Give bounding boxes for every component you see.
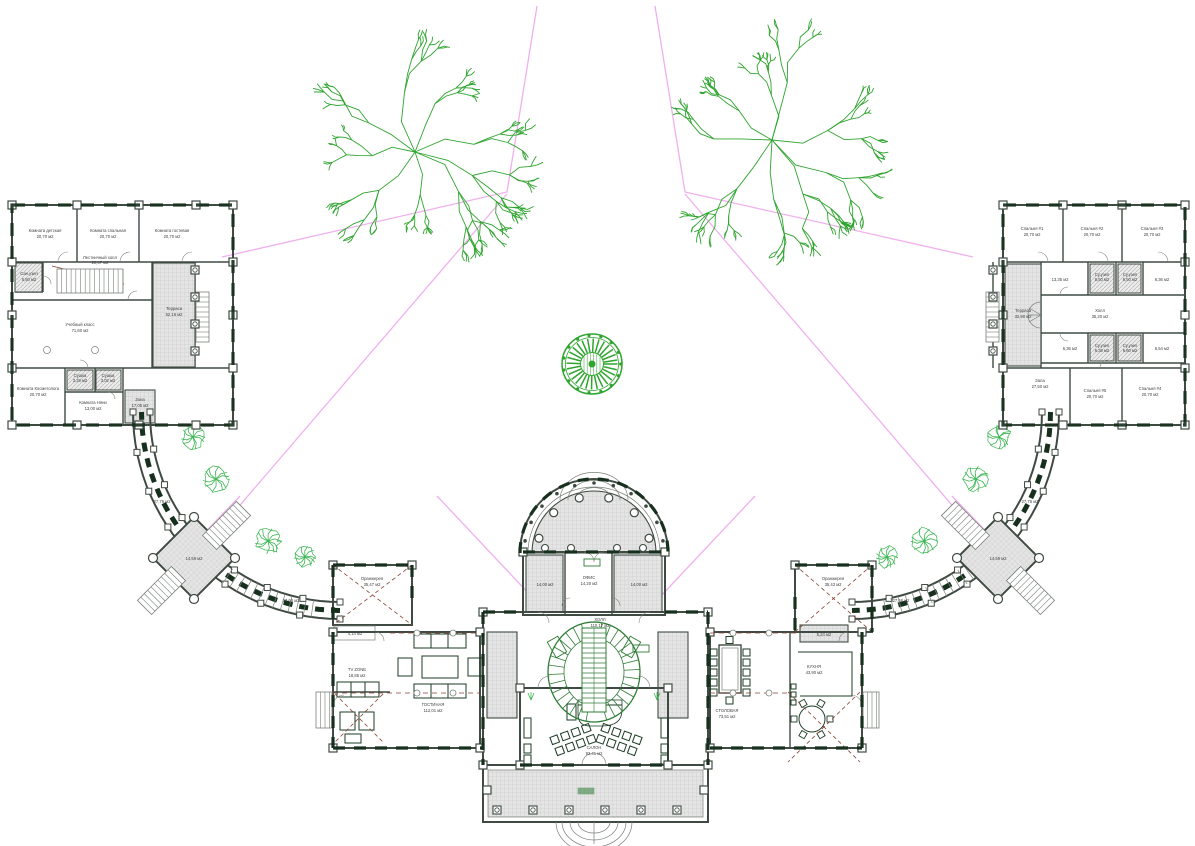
room-label: СТОЛОВАЯ [716, 708, 739, 713]
room-area: 20,70 м2 [37, 234, 55, 239]
room-label: Зона [135, 397, 145, 402]
side-table [345, 734, 361, 743]
console [524, 718, 531, 738]
sofa-cushions [431, 684, 448, 698]
room-area: 32,90 м2 [1015, 314, 1033, 319]
stool [524, 744, 531, 753]
sofa [414, 634, 466, 648]
room-label: Оранжерея [822, 576, 844, 581]
tree [313, 29, 543, 262]
stairs [57, 269, 999, 728]
room-area: 3,02 м2 [101, 378, 116, 383]
room-label: Комната Косметолога [17, 386, 60, 391]
dining-table-inner [722, 648, 738, 690]
column [92, 347, 99, 354]
room-area: 112,01 м2 [424, 708, 444, 713]
room-area: 17,05 м2 [132, 403, 150, 408]
room-area: 20,70 м2 [100, 234, 118, 239]
room-label: Спальня #3 [1141, 226, 1164, 231]
tree [671, 19, 892, 266]
pavilion-steps [202, 501, 250, 549]
armchair [398, 658, 412, 676]
room-area: 35,20 м2 [1092, 314, 1110, 319]
grand-oval-stair [547, 622, 640, 722]
pavilion-area: 14,59 м2 [990, 556, 1008, 561]
room-area: 5,24 м2 [817, 632, 832, 637]
pavilion-steps [941, 501, 989, 549]
room-label: САЛОН [587, 745, 602, 750]
generated-decor [8, 19, 1189, 814]
sofa [414, 684, 466, 698]
room-label: ГОСТИНАЯ [422, 702, 445, 707]
bush [255, 528, 282, 554]
room-area: 6,50 м2 [1095, 277, 1110, 282]
room-label: Спальня #1 [1021, 226, 1044, 231]
bush [911, 527, 938, 554]
stool [524, 755, 531, 764]
fountain [562, 334, 622, 394]
tv-sofa-cushions [351, 682, 365, 697]
room-area: 43,90 м2 [806, 670, 824, 675]
room-label: Спальня #5 [1084, 388, 1107, 393]
room-label: ОФИС [583, 575, 595, 580]
bush [294, 546, 316, 567]
room-area: 20,70 м2 [1087, 394, 1105, 399]
room-area: 6,54 м2 [1155, 346, 1170, 351]
pavilion-area: 14,59 м2 [186, 556, 204, 561]
dining-doors [839, 632, 862, 706]
lounge-block [333, 565, 482, 748]
room-area: 6,60 м2 [1123, 348, 1138, 353]
room-label: КУХНЯ [807, 664, 821, 669]
room-area: 18,85 м2 [349, 673, 367, 678]
terrace-floor [488, 770, 703, 817]
door-mat [578, 788, 594, 794]
room-area: 14,20 м2 [581, 581, 599, 586]
gallery-area: 27,76 м2 [1022, 499, 1040, 504]
room-label: Сан.узел [20, 271, 38, 276]
room-area: 20,70 м2 [30, 392, 48, 397]
appliance [791, 700, 796, 705]
room-area: 6,38 м2 [1095, 348, 1110, 353]
room-label: Комната детская [29, 228, 62, 233]
lounge-walls [333, 632, 480, 748]
sofa-cushions [431, 634, 448, 648]
armchair [340, 712, 355, 730]
room-label: Терраса [1015, 308, 1032, 313]
appliance [791, 684, 796, 689]
bush [876, 546, 898, 569]
room-area: 6,36 м2 [1063, 346, 1078, 351]
room-area: 13,35 м2 [1052, 277, 1070, 282]
console [661, 718, 668, 738]
appliance [791, 692, 796, 697]
room-area: 14,00 м2 [537, 582, 555, 587]
room-area: 6,36 м2 [1155, 277, 1170, 282]
room-label: Учебный класс [65, 322, 94, 327]
floor-plan-sheet: Комната детская 20,70 м2 Комната спальна… [0, 0, 1195, 846]
armchair [359, 712, 374, 730]
room-area: 93,41 м2 [586, 751, 604, 756]
room-label: Спальня #4 [1139, 386, 1162, 391]
gallery-area: 27,76 м2 [154, 499, 172, 504]
pavilion-steps [137, 566, 185, 614]
gallery-area: 27,66 м2 [283, 598, 301, 603]
room-area: 73,51 м2 [719, 714, 737, 719]
room-label: Комната гостевая [155, 228, 189, 233]
room-area: 27,50 м2 [1032, 384, 1050, 389]
stool [661, 744, 668, 753]
portico-floor [532, 491, 656, 553]
kitchen-table [799, 706, 825, 732]
gallery-area: 27,66 м2 [893, 598, 911, 603]
room-area: 20,70 м2 [1084, 232, 1102, 237]
room-label: Холл [1095, 308, 1105, 313]
bush [963, 466, 989, 492]
coffee-table [422, 656, 458, 678]
room-area: 5,50 м2 [22, 277, 37, 282]
room-area: 20,70 м2 [1024, 232, 1042, 237]
room-area: 20,70 м2 [1144, 232, 1162, 237]
service-strip-right [658, 632, 688, 718]
room-area: 20,70 м2 [1142, 392, 1160, 397]
room-area: 14,00 м2 [631, 582, 649, 587]
service-strip-left [487, 632, 517, 718]
trees [313, 19, 893, 266]
room-label: Оранжерея [361, 576, 383, 581]
room-area: 35,47 м2 [364, 582, 382, 587]
room-area: 110,17 м2 [591, 623, 611, 628]
room-area: 20,70 м2 [164, 234, 182, 239]
terrace-steps [556, 822, 632, 846]
room-area: 20,47 м2 [92, 260, 110, 265]
safe-box [584, 559, 600, 566]
room-label: TV ZONE [348, 667, 366, 672]
room-area: 6,50 м2 [1123, 277, 1138, 282]
bush [203, 466, 229, 492]
room-label: Спальня #2 [1081, 226, 1104, 231]
room-area: 3,29 м2 [73, 378, 88, 383]
room-label: Зала [1035, 378, 1045, 383]
room-label: Терраса [166, 306, 183, 311]
room-area: 4,14 м2 [348, 631, 363, 636]
room-area: 71,60 м2 [72, 328, 90, 333]
room-area: 52,16 м2 [166, 312, 184, 317]
room-label: Комната Няни [79, 400, 107, 405]
floor-plan-canvas: Комната детская 20,70 м2 Комната спальна… [0, 0, 1195, 846]
room-label: Комната спальная [90, 228, 126, 233]
room-label: ХОЛЛ [594, 617, 606, 622]
room-area: 35,43 м2 [825, 582, 843, 587]
room-area: 13,00 м2 [85, 406, 103, 411]
column [44, 347, 51, 354]
pavilion-steps [1006, 566, 1054, 614]
